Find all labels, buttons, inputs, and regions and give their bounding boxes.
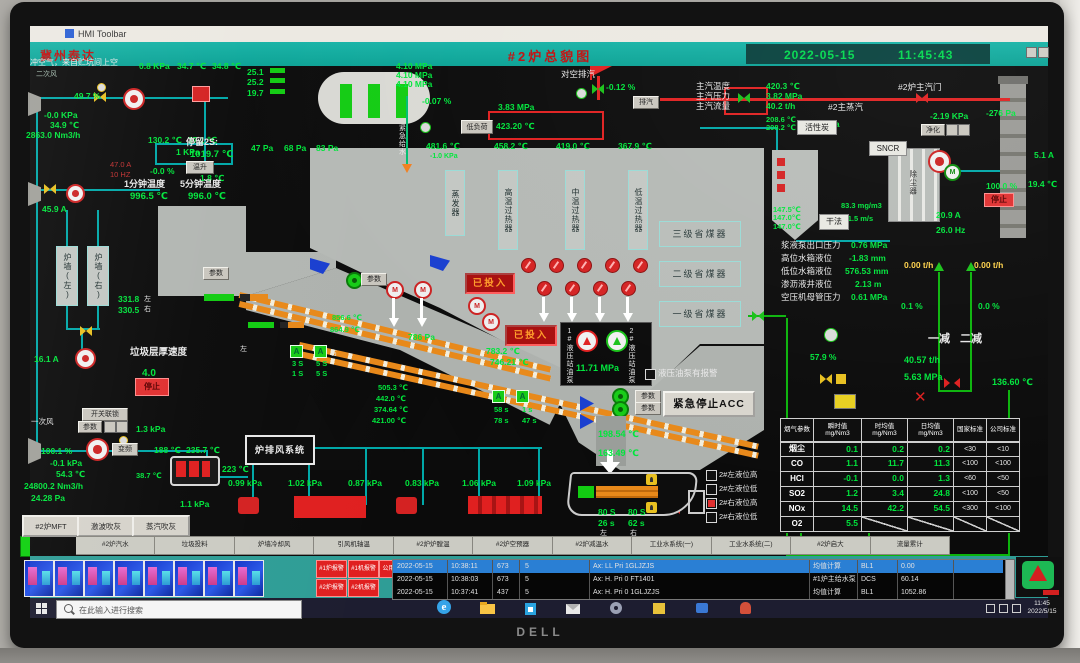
alarm-cell: 437 [497,589,509,596]
hmi-value-label: 49.7 % [74,92,100,101]
hmi-value-label: 40.57 t/h [904,356,940,365]
emissions-cell: 0.2 [862,442,908,457]
hmi-value-label: 34.7 ℃ [177,62,206,71]
hmi-value-label: 0.0 % [978,302,1000,311]
hmi-value-label: 505.3 ℃ [378,384,408,392]
hmi-value-label: -0.0 % [150,167,175,176]
hmi-value-label: 垃圾层厚速度 [130,348,187,358]
hmi-value-label: 57.9 % [810,353,836,362]
nav-button[interactable]: 蒸汽吹灰 [132,515,190,537]
hmi-value-label: 864.9 ℃ [330,326,360,334]
hmi-value-label: 198.54 ℃ [598,430,639,439]
emissions-cell: 0.2 [908,442,954,457]
hmi-value-label: 低位水箱液位 [781,267,832,276]
emissions-cell: 0.1 [814,442,862,457]
checkbox[interactable] [706,512,717,523]
hmi-box: 三级省煤器 [659,221,741,247]
hmi-value-label: 783.2 ℃ [486,347,520,356]
emissions-cell: 1.3 [908,472,954,487]
screen-thumbnail[interactable] [174,560,204,597]
equipment-label: 1#液压站油泵 [564,327,575,385]
hmi-value-label: 4.10 MPa [396,80,432,89]
emissions-cell: 瞬时值 mg/Nm3 [814,418,862,442]
hmi-value-label: 235.7 ℃ [186,446,220,455]
hmi-box: 活性炭 [797,120,837,135]
nav-button[interactable]: #2炉MFT [22,515,80,537]
alarm-cell: 5 [525,589,529,596]
alarm-cell: 10:37:41 [451,589,478,596]
hmi-value-label: 746.21 ℃ [490,358,529,367]
hmi-box[interactable]: 停止 [984,193,1014,207]
hmi-value-label: -2.19 KPa [930,112,968,121]
hmi-value-label: -0.0 KPa [44,111,78,120]
hmi-box: 已投入 [465,273,515,294]
checkbox-label: 2#右液位高 [719,499,757,507]
hmi-value-label: 2863.0 Nm3/h [26,131,80,140]
alarm-cell: 5 [525,563,529,570]
nav-tab[interactable]: #2炉空预器 [473,536,552,555]
hmi-value-label: 420.3 ℃ [766,82,800,91]
alarm-row[interactable]: 2022-05-1510:38:116735Ax: LL Pri 1GLJZJS… [393,560,1003,573]
hmi-value-label: 11.71 MPa [576,364,619,373]
hmi-value-label: 47 Pa [251,144,273,153]
hmi-value-label: #2主蒸汽 [828,103,863,112]
equipment-label: 低温过热器 [628,170,648,250]
hmi-value-label: 浆液泵出口压力 [781,241,841,250]
alarm-cell: Ax: H. Pri 0 1GLJZJS [593,589,660,596]
hmi-value-label: 主汽压力 [696,92,730,101]
nav-button[interactable]: 激波吹灰 [77,515,135,537]
hmi-value-label: 0.83 kPa [405,479,439,488]
hmi-value-label: 80 S [628,508,646,517]
hmi-value-label: 一次风 [31,418,54,426]
nav-tab[interactable]: #2炉炉膛温 [394,536,473,555]
hmi-value-label: 5 S [316,370,327,378]
emissions-cell: 0.0 [862,472,908,487]
alarm-cell: 10:38:11 [451,563,478,570]
checkbox-label: 2#左液位高 [719,471,757,479]
hmi-value-label: 68 Pa [284,144,306,153]
hmi-value-label: 1 s [522,406,532,414]
hmi-value-label: 1.06 kPa [462,479,496,488]
hmi-value-label: 右 [330,350,337,357]
hmi-value-label: 188 ℃ [154,446,181,455]
hmi-value-label: 421.00 ℃ [372,417,406,425]
hmi-value-label: 3.82 MPa [766,92,802,101]
alarm-cell: 均值计算 [813,563,841,570]
hmi-value-label: 996.0 ℃ [188,192,226,202]
alarm-button[interactable]: #1炉报警 [316,560,347,578]
hmi-value-label: 1分钟温度 [124,180,165,189]
checkbox-label: 2#左液位低 [719,485,757,493]
hmi-value-label: 40.2 t/h [766,102,795,111]
equipment-label: 蒸发器 [445,170,465,236]
hmi-value-label: 停留2S: [186,138,218,147]
alarm-cell: 673 [497,576,509,583]
emissions-cell: 42.2 [862,502,908,517]
hmi-value-label: 481.6 ℃ [426,142,460,151]
alarm-cell: 均值计算 [813,589,841,596]
screen-thumbnail[interactable] [144,560,174,597]
alarm-row[interactable]: 2022-05-1510:37:414375Ax: H. Pri 0 1GLJZ… [393,586,1003,599]
hmi-value-label: 0.61 MPa [851,293,887,302]
hmi-value-label: 147.0℃ [773,223,801,231]
hmi-value-label: 19.4 ℃ [1028,180,1057,189]
hmi-value-label: 786 Pa [408,333,435,342]
hmi-value-label: 高位水箱液位 [781,254,832,263]
emissions-cell: 公司标准 [987,418,1020,442]
screen-thumbnail[interactable] [54,560,84,597]
hmi-value-label: 0.00 t/h [974,261,1003,270]
alarm-cell: 1052.86 [901,589,926,596]
hmi-value-label: 1.02 kPa [288,479,322,488]
hmi-value-label: 一减 [928,334,950,345]
hmi-button[interactable]: 温升 [186,161,214,174]
alarm-cell: 0.00 [901,563,915,570]
hmi-value-label: 左 [240,346,247,353]
emissions-cell: 24.8 [908,487,954,502]
hmi-value-label: 330.5 [118,306,139,315]
hmi-value-label: 5.1 A [1034,151,1054,160]
hmi-value-label: 100.0 % [986,182,1017,191]
monitor-photo: DELL HMI Toolbar 冀州泰达 #2炉总貌图 2022-05-15 … [0,0,1080,663]
checkbox[interactable] [645,369,656,380]
alarm-list[interactable]: 2022-05-1510:38:116735Ax: LL Pri 1GLJZJS… [392,559,1006,600]
hmi-value-label: -0.07 % [422,97,451,106]
emissions-cell: 5.5 [814,517,862,532]
hmi-value-label: 147.0℃ [773,214,801,222]
hmi-value-label: 100.1 % [41,447,72,456]
equipment-label: 除尘器 [906,152,920,214]
hmi-value-label: 1019.7 ℃ [190,150,233,160]
hmi-value-label: 3.83 MPa [498,103,534,112]
hmi-button[interactable]: 参数 [361,273,387,286]
emissions-cell [908,517,954,532]
hmi-box[interactable]: 停止 [135,378,169,396]
alarm-cell: Ax: LL Pri 1GLJZJS [593,563,654,570]
hmi-value-label: 液压油泵有报警 [658,369,718,378]
hmi-value-label: 2.13 m [855,280,881,289]
nav-tab[interactable]: 炉墙冷却风 [235,536,314,555]
hmi-value-label: 331.8 [118,295,139,304]
hmi-value-label: 24.28 Pa [31,494,65,503]
hmi-value-label: 62 s [628,519,645,528]
emissions-cell: 国家标准 [954,418,987,442]
hmi-value-label: 45.9 A [42,205,67,214]
hmi-value-label: 26 s [598,519,615,528]
screen-thumbnail[interactable] [234,560,264,597]
equipment-label: 高温过热器 [498,170,518,250]
hmi-value-label: #2炉主汽门 [898,83,941,92]
equipment-label: 中温过热器 [565,170,585,250]
hmi-value-label: 右 [144,306,151,313]
alarm-cell: 2022-05-15 [397,563,433,570]
hmi-value-label: 34.8 ℃ [212,62,241,71]
screen-thumbnail[interactable] [84,560,114,597]
alarm-cell: DCS [861,576,876,583]
hmi-value-label: 374.64 ℃ [374,406,408,414]
emissions-cell: 1.1 [814,457,862,472]
nav-tab[interactable]: 垃圾投料 [155,536,234,555]
alarm-cell: 10:38:03 [451,576,478,583]
hmi-value-label: 0.8 KPa [139,62,170,71]
hmi-button[interactable]: 参数 [78,421,102,433]
equipment-label: 炉墙(右) [87,246,109,306]
hmi-value-label: 576.53 mm [845,267,888,276]
checkbox[interactable] [706,470,717,481]
hmi-value-label: 左 [144,296,151,303]
hmi-value-label: 47.0 A [110,161,131,169]
emissions-cell: <50 [987,472,1020,487]
emissions-cell: 11.3 [908,457,954,472]
emissions-cell [987,517,1020,532]
emissions-cell [954,517,987,532]
emissions-cell: <100 [987,502,1020,517]
hmi-value-label: 26.0 Hz [936,226,965,235]
emissions-cell: <100 [954,457,987,472]
hmi-value-label: 442.0 ℃ [376,395,406,403]
screen-thumbnail[interactable] [114,560,144,597]
emissions-cell: 54.5 [908,502,954,517]
hmi-value-label: 1 S [292,370,303,378]
hmi-value-label: 0.1 % [901,302,923,311]
emissions-cell: 3.4 [862,487,908,502]
emissions-cell: 时均值 mg/Nm3 [862,418,908,442]
nav-tab[interactable]: 工业水系统(二) [712,536,791,555]
hmi-value-label: 208.2 ℃ [766,124,796,132]
hmi-box: 一级省煤器 [659,301,741,327]
hmi-box: 干法 [819,214,849,230]
alarm-row[interactable]: 2022-05-1510:38:036735Ax: H. Pri 0 FT140… [393,573,1003,586]
hmi-value-label: 0.00 t/h [904,261,933,270]
screen-thumbnail[interactable] [24,560,54,597]
hmi-button[interactable]: 参数 [203,267,229,280]
emissions-cell [862,517,908,532]
hmi-value-label: -1.0 KPa [430,153,458,160]
hmi-value-label: 163.49 ℃ [598,449,639,458]
emissions-cell: <30 [954,442,987,457]
hmi-button[interactable]: 参数 [635,402,661,415]
equipment-label: 紧急给水 [396,112,408,168]
alarm-cell: #1炉主给水泵 [813,576,856,583]
hmi-button[interactable]: 排汽 [633,96,659,109]
equipment-label: 2#液压站油泵 [626,327,637,385]
hmi-value-label: 5分钟温度 [180,180,221,189]
alarm-cell: 60.14 [901,576,919,583]
hmi-value-label: 34.9 ℃ [50,121,79,130]
alarm-cell: BL1 [861,589,873,596]
checkbox[interactable] [706,484,717,495]
hmi-value-label: 80 S [598,508,616,517]
hmi-button[interactable]: 净化 [921,124,945,136]
hmi-value-label: 20.9 A [936,211,961,220]
hmi-value-label: 19.7 [247,89,264,98]
emissions-cell: 烟尘 [780,442,814,457]
emissions-cell: SO2 [780,487,814,502]
nav-tab[interactable]: 流量累计 [871,536,950,555]
emissions-cell: CO [780,457,814,472]
hmi-value-label: 二次风 [36,71,57,78]
emissions-cell: HCl [780,472,814,487]
emissions-cell: <50 [987,487,1020,502]
hmi-button[interactable]: 变频 [112,443,138,456]
hmi-value-label: 0.99 kPa [228,479,262,488]
checkbox-label: 2#右液位低 [719,513,757,521]
alarm-cell: 673 [497,563,509,570]
hmi-value-label: 38.7 ℃ [136,472,162,480]
hmi-value-label: 16.1 A [34,355,59,364]
alarm-cell: 5 [525,576,529,583]
hmi-box: 二级省煤器 [659,261,741,287]
alarm-button[interactable]: #1机报警 [348,560,379,578]
hmi-value-label: 24800.2 Nm3/h [24,482,83,491]
hmi-value-label: 130.2 ℃ [148,136,182,145]
nav-tab[interactable]: #2炉汽水 [76,536,155,555]
alarm-cell: BL1 [861,563,873,570]
checkbox[interactable] [706,498,717,509]
emissions-cell: <300 [954,502,987,517]
emissions-cell: 日均值 mg/Nm3 [908,418,954,442]
emissions-cell: <60 [954,472,987,487]
emissions-cell: 1.2 [814,487,862,502]
hmi-value-label: 渗沥液井液位 [781,280,832,289]
hmi-value-label: 1.09 kPa [517,479,551,488]
hmi-value-label: 54.3 ℃ [56,470,85,479]
alarm-cell: Ax: H. Pri 0 FT1401 [593,576,654,583]
hmi-value-label: 冲空气，来自贮坑间上空 [30,59,118,67]
emissions-cell: 烟气参数 [780,418,814,442]
hmi-value-label: 10 HZ [110,171,130,179]
emissions-cell: NOx [780,502,814,517]
nav-tab[interactable]: 引风机轴温 [314,536,393,555]
hmi-value-label: 1.1 kPa [180,500,209,509]
hmi-value-label: 0.87 kPa [348,479,382,488]
hmi-value-label: 3 S [292,360,303,368]
alarm-button[interactable]: #2炉报警 [316,579,347,597]
hmi-button[interactable]: 紧急停止ACC [663,391,755,417]
emissions-cell: <10 [987,442,1020,457]
hmi-value-label: 367.9 ℃ [618,142,652,151]
hmi-value-label: 25.2 [247,78,264,87]
hmi-value-label: 5.63 MPa [904,373,943,382]
hmi-value-label: 458.2 ℃ [494,142,528,151]
hmi-value-label: 25.1 [247,68,264,77]
nav-tab[interactable]: 工业水系统(一) [632,536,711,555]
hmi-button[interactable]: 低负荷 [461,120,493,134]
hmi-value-label: -276 Pa [986,109,1016,118]
hmi-value-label: 996.5 ℃ [130,192,168,202]
alarm-button[interactable]: #2机报警 [348,579,379,597]
hmi-box: SNCR [869,141,907,156]
alarm-cell: 2022-05-15 [397,589,433,596]
hmi-value-label: 空压机母管压力 [781,293,841,302]
hmi-value-label: 78 s [494,417,509,425]
hmi-value-label: 对空排汽 [561,70,595,79]
emissions-cell: 14.5 [814,502,862,517]
nav-tab[interactable]: #2炉减温水 [553,536,632,555]
hmi-value-label: 5 S [316,360,327,368]
hmi-value-label: -0.12 % [606,83,635,92]
hmi-value-label: 83 Pa [316,144,338,153]
hmi-value-label: 主汽流量 [696,102,730,111]
hmi-value-label: 136.60 ℃ [992,378,1033,387]
hmi-value-label: 1.3 kPa [136,425,165,434]
hmi-value-label: 主汽温度 [696,82,730,91]
hmi-value-label: -0.1 kPa [50,459,82,468]
emissions-cell: O2 [780,517,814,532]
alarm-cell: 2022-05-15 [397,576,433,583]
hmi-value-label: 58 s [494,406,509,414]
nav-tab-row: #2炉汽水垃圾投料炉墙冷却风引风机轴温#2炉炉膛温#2炉空预器#2炉减温水工业水… [76,536,950,555]
emissions-cell: 11.7 [862,457,908,472]
hmi-box: 炉排风系统 [245,435,315,465]
hmi-value-label: -1.83 mm [849,254,886,263]
nav-tab[interactable]: #2炉启大 [791,536,870,555]
hmi-button[interactable]: 开关联锁 [82,408,128,421]
emissions-cell: -0.1 [814,472,862,487]
hmi-box: 已投入 [505,325,557,346]
equipment-label: 炉墙(左) [56,246,78,306]
hmi-value-label: 二减 [960,334,982,345]
emissions-table: 烟气参数瞬时值 mg/Nm3时均值 mg/Nm3日均值 mg/Nm3国家标准公司… [780,418,1021,533]
hmi-value-label: 423.20 ℃ [496,122,535,131]
emissions-cell: <100 [954,487,987,502]
screen-thumbnail[interactable] [204,560,234,597]
hmi-value-label: 223 ℃ [222,465,249,474]
hmi-value-label: 0.76 MPa [851,241,887,250]
emissions-cell: <100 [987,457,1020,472]
hmi-value-label: 419.0 ℃ [556,142,590,151]
hmi-value-label: 47 s [522,417,537,425]
hmi-value-label: 83.3 mg/m3 [841,202,882,210]
hmi-value-label: 856.6 ℃ [332,314,362,322]
